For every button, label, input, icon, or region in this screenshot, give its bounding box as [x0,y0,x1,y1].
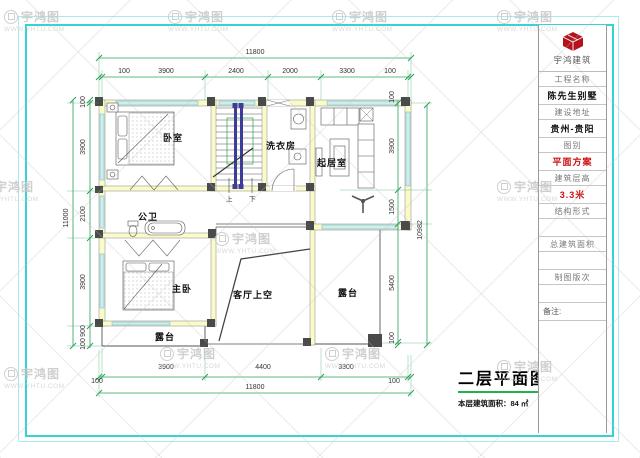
company-logo [561,31,585,52]
company-name: 宇鸿建筑 [553,54,591,66]
dim-left-100a: 100 [80,96,88,108]
tb-label-version: 制图版次 [539,270,606,285]
stair-handrail [233,103,244,189]
tb-value-area [539,252,606,270]
dim-right-1500: 1500 [389,199,397,215]
void-boundary [205,224,310,344]
sofa-icon [316,108,374,188]
room-label-laundry: 洗衣房 [266,139,296,152]
dim-top-100a: 100 [118,68,130,76]
master-bed-icon [123,261,174,310]
room-label-bathroom: 公卫 [138,210,158,223]
title-underline [458,391,540,393]
room-label-terrace-left: 露台 [155,330,175,343]
dim-top-2000: 2000 [282,68,298,76]
tb-value-project: 陈先生别墅 [539,87,606,105]
tb-empty-cell [539,321,606,433]
dim-bottom-overall: 11800 [99,384,411,392]
dim-left-100b: 100 [80,338,88,350]
stair-up-label: 上 [226,193,233,203]
room-label-terrace-right: 露台 [338,286,358,299]
dim-top-overall: 11800 [99,49,411,57]
stairs [213,103,262,193]
dim-right-100b: 100 [389,332,397,344]
dim-left-overall: 11000 [63,209,71,228]
title-block: 宇鸿建筑 工程名称 陈先生别墅 建设地址 贵州-贵阳 图别 平面方案 建筑层高 … [538,25,607,433]
dim-bot-3300: 3300 [338,364,354,372]
master-door-icon [125,240,180,256]
room-label-void: 客厅上空 [233,288,273,301]
tb-value-address: 贵州-贵阳 [539,120,606,138]
dim-bot-3900: 3900 [158,364,174,372]
tb-label-category: 图别 [539,138,606,153]
tb-value-category: 平面方案 [539,153,606,171]
company-cell: 宇鸿建筑 [539,25,606,72]
dim-bot-4400: 4400 [255,364,271,372]
tb-value-structure [539,219,606,237]
tb-label-structure: 结构形式 [539,204,606,219]
dim-left-3900b: 3900 [80,274,88,290]
bathtub-icon [145,221,185,235]
tb-label-area: 总建筑面积 [539,237,606,252]
tb-remarks: 备注: [539,303,606,321]
tb-value-version [539,285,606,303]
dim-left-2100: 2100 [80,206,88,222]
tb-label-height: 建筑层高 [539,171,606,186]
dim-right-3900: 3900 [389,138,397,154]
dim-right-overall: 10982 [417,220,425,239]
room-label-master: 主卧 [172,282,192,295]
drawing-canvas: 11800 100 3900 2400 2000 3300 100 100 39… [0,0,640,458]
washer-icon [289,109,306,164]
ceiling-fan-icon [352,196,374,213]
dim-top-3900: 3900 [158,68,174,76]
tb-label-address: 建设地址 [539,105,606,120]
dim-top-100b: 100 [384,68,396,76]
dim-right-100a: 100 [389,91,397,103]
room-label-bedroom: 卧室 [163,131,183,144]
dim-top-2400: 2400 [228,68,244,76]
dim-left-900: 900 [80,325,88,337]
stair-break-line [213,148,253,177]
tb-value-height: 3.3米 [539,186,606,204]
stair-down-label: 下 [249,193,256,203]
dim-top-3300: 3300 [339,68,355,76]
dim-left-3900a: 3900 [80,139,88,155]
tb-label-project: 工程名称 [539,72,606,87]
room-label-living: 起居室 [317,156,347,169]
dim-right-5400: 5400 [389,275,397,291]
